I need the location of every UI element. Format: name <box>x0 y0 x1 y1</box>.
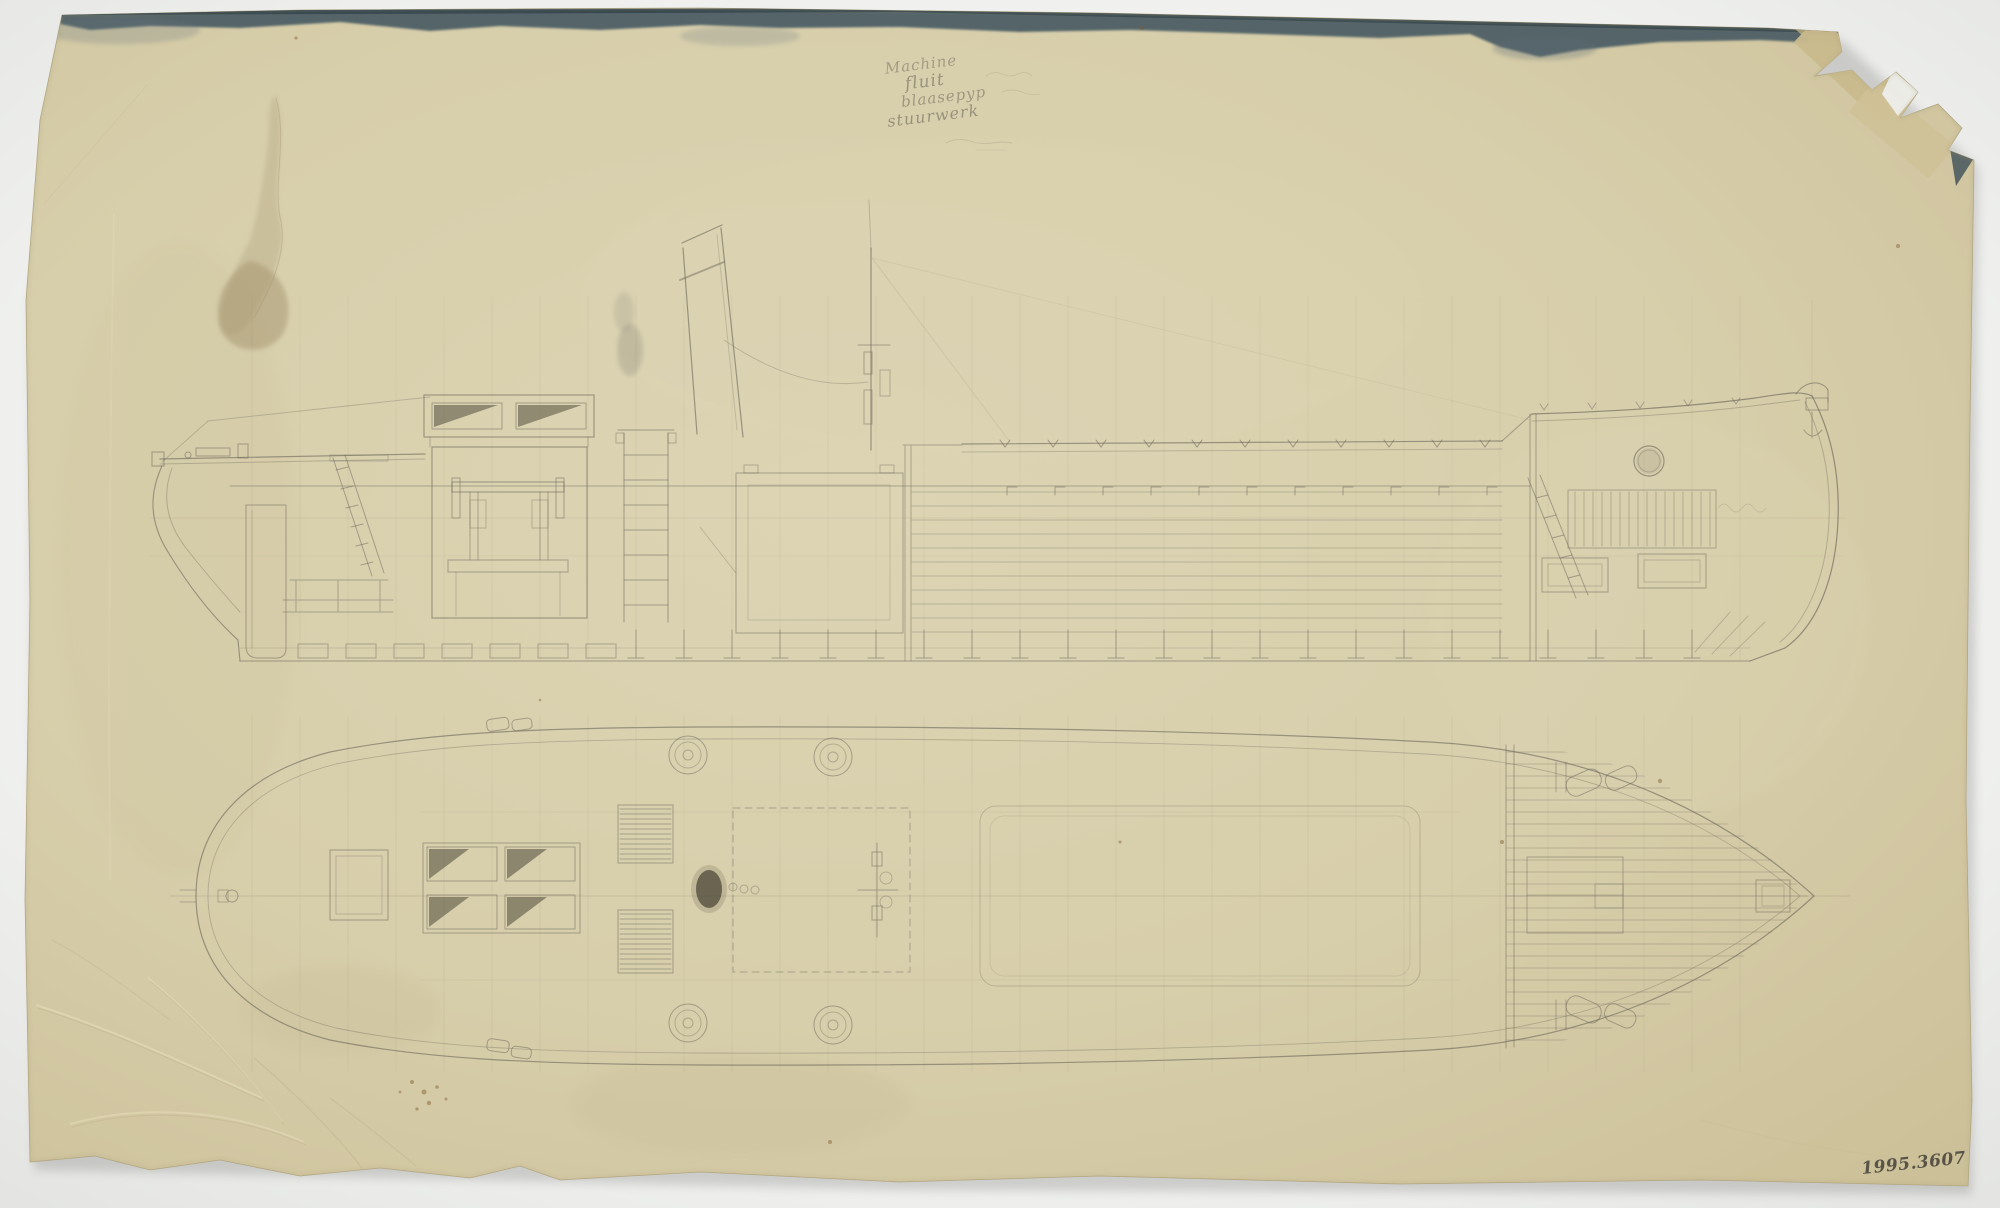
paper-sheet <box>25 5 1974 1186</box>
ship-plan-canvas: Machine fluit blaasepyp stuurwerk 1995.3… <box>0 0 2000 1208</box>
scanned-ship-plan-photo: Machine fluit blaasepyp stuurwerk 1995.3… <box>0 0 2000 1208</box>
